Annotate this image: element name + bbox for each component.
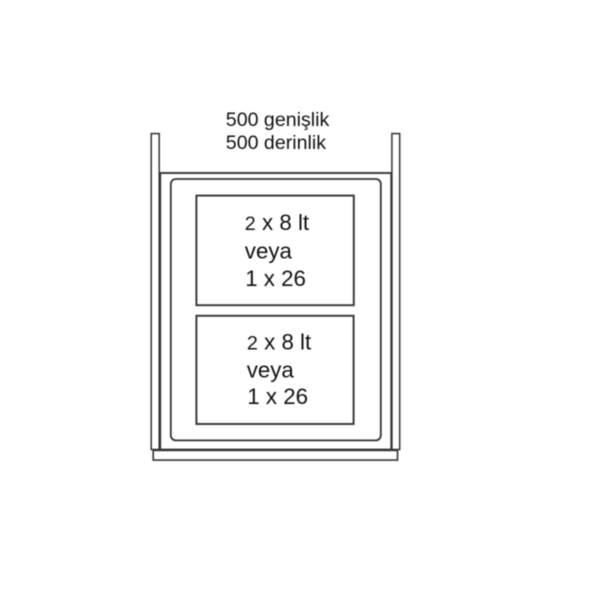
svg-text:500 genişlik: 500 genişlik (226, 109, 330, 131)
svg-text:veya: veya (245, 238, 293, 263)
svg-text:2 x 8 lt: 2 x 8 lt (245, 210, 310, 235)
svg-text:1 x 26: 1 x 26 (245, 266, 306, 291)
svg-text:1 x 26: 1 x 26 (247, 384, 308, 409)
svg-text:2 x 8 lt: 2 x 8 lt (247, 330, 312, 355)
svg-text:veya: veya (247, 358, 295, 383)
svg-text:500 derinlik: 500 derinlik (226, 132, 326, 154)
